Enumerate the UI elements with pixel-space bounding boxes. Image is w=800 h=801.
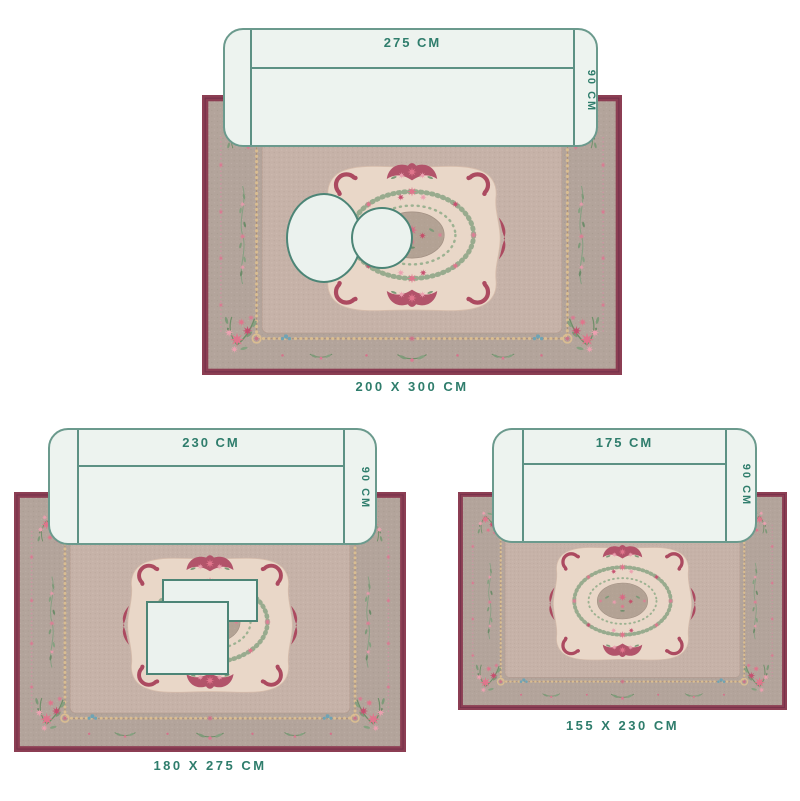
sofa-depth-label: 90 CM <box>581 61 597 121</box>
sofa-backrest-line <box>250 67 575 69</box>
sofa-width-label: 230 CM <box>79 435 343 450</box>
coffee-table-round <box>351 207 413 269</box>
sofa-armrest-line-right <box>573 30 575 145</box>
sofa-outline-230: 230 CM 90 CM <box>48 428 377 545</box>
rug-size-guide: 275 CM 90 CM 200 X 300 CM 230 CM 90 CM 1… <box>0 0 800 801</box>
sofa-outline-275: 275 CM 90 CM <box>223 28 598 147</box>
sofa-width-label: 175 CM <box>524 435 725 450</box>
sofa-armrest-line-right <box>725 430 727 541</box>
sofa-backrest-line <box>77 465 345 467</box>
rug-size-caption: 155 X 230 CM <box>458 718 787 733</box>
rug-size-caption: 180 X 275 CM <box>14 758 406 773</box>
rug-size-caption: 200 X 300 CM <box>202 379 622 394</box>
sofa-outline-175: 175 CM 90 CM <box>492 428 757 543</box>
side-table-rect-front <box>146 601 229 675</box>
sofa-depth-label: 90 CM <box>736 455 752 515</box>
sofa-depth-label: 90 CM <box>355 458 371 518</box>
sofa-width-label: 275 CM <box>252 35 573 50</box>
sofa-backrest-line <box>522 463 727 465</box>
sofa-armrest-line-right <box>343 430 345 543</box>
